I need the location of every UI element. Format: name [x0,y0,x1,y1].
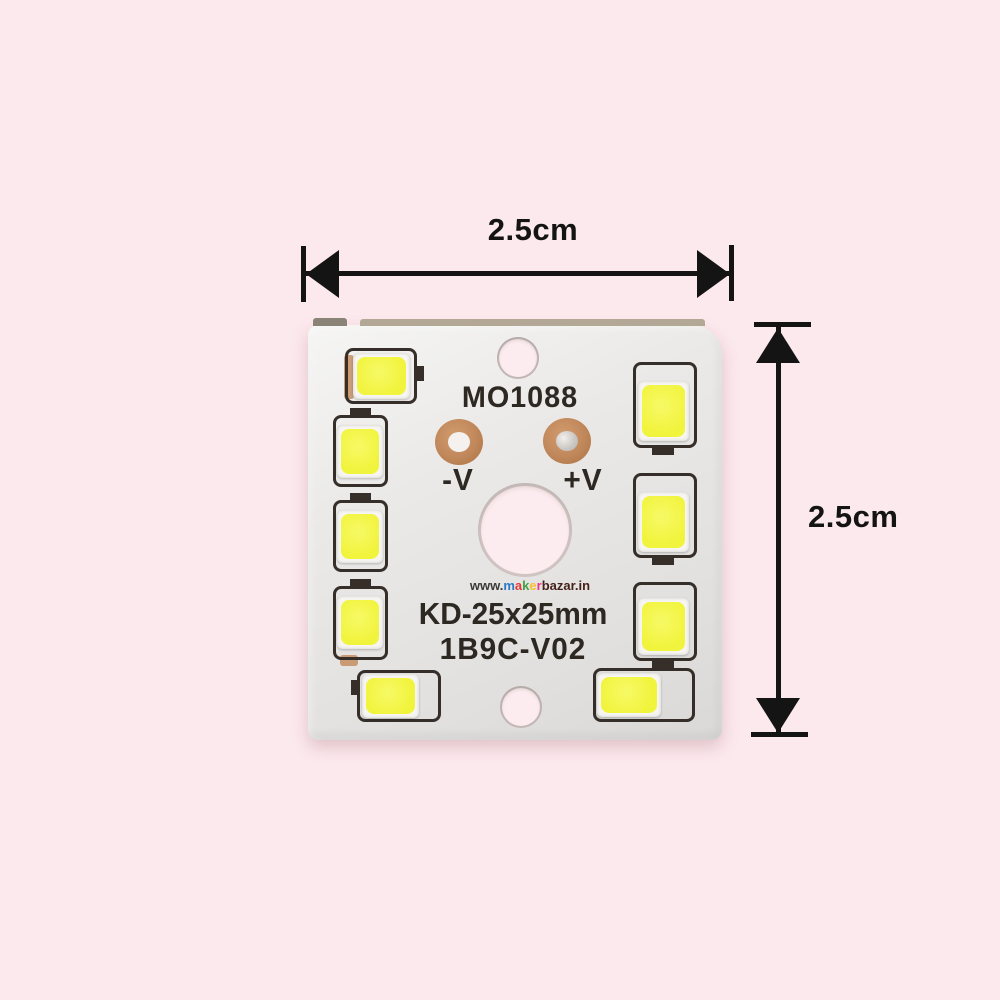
watermark-prefix: www. [470,578,503,593]
model-number: MO1088 [424,381,616,415]
led-right-3 [633,582,697,661]
solder-pad-negative [435,419,483,465]
size-label: KD-25x25mm [412,596,614,632]
led-right-1 [633,362,697,448]
led-right-2 [633,473,697,558]
arrowhead-right-icon [697,250,730,298]
led-top-left [345,348,417,404]
led-bottom-right [593,668,695,722]
led-left-1 [333,415,388,487]
positive-terminal-label: +V [540,462,626,498]
height-dimension-line [776,326,781,735]
watermark: www.makerbazar.in [455,578,605,593]
led-left-3 [333,586,388,660]
arrowhead-down-icon [756,698,800,733]
board-edge-tab [313,318,347,326]
led-pcb-module: MO1088 -V +V www.makerbazar.in KD-25x25m… [308,325,722,740]
watermark-brand-letter: m [503,578,515,593]
led-bottom-left [357,670,441,722]
watermark-brand: maker [503,578,541,593]
width-dimension-line [306,271,730,276]
width-dimension-label: 2.5cm [433,212,633,248]
dimension-endcap-top [754,322,811,327]
negative-terminal-label: -V [415,462,501,498]
solder-pad-positive [543,418,591,464]
product-image: 2.5cm 2.5cm MO1088 -V +V www [0,0,1000,1000]
watermark-suffix: bazar.in [542,578,590,593]
height-dimension-label: 2.5cm [808,499,898,535]
board-edge-strip [360,319,705,326]
arrowhead-left-icon [306,250,339,298]
mounting-hole-bottom [500,686,542,728]
watermark-brand-letter: e [529,578,536,593]
arrowhead-up-icon [756,328,800,363]
mounting-hole-top [497,337,539,379]
version-label: 1B9C-V02 [417,631,609,667]
led-left-2 [333,500,388,572]
